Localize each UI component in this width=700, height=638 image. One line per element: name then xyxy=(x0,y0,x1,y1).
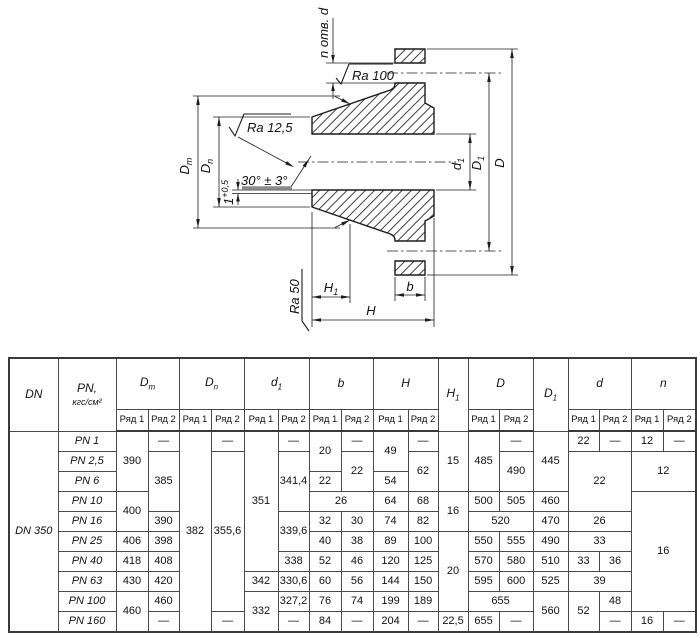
row-label: PN 25 xyxy=(58,532,116,552)
label-angle: 30° ± 3° xyxy=(241,173,287,188)
flange-drawing: n отв. d Ra 100 Ra 12,5 30° ± 3° 1+0,5 R… xyxy=(0,0,700,350)
table-cell: — xyxy=(408,612,438,633)
label-b: b xyxy=(406,279,413,294)
table-cell: — xyxy=(341,431,373,452)
table-cell: 100 xyxy=(408,532,438,552)
table-cell: 12 xyxy=(631,431,663,452)
table-row: PN 100460460332327,276741991896555605248 xyxy=(9,592,696,612)
table-cell: 22,5 xyxy=(438,612,468,633)
table-cell: 36 xyxy=(599,552,631,572)
table-row: PN 4041840833852461201255705805103336 xyxy=(9,552,696,572)
table-cell: 16 xyxy=(438,492,468,532)
label-ra50: Ra 50 xyxy=(287,279,302,314)
spec-table: DNPN,кгс/см²DmDnd1bHH1DD1dnРяд 1Ряд 2Ряд… xyxy=(8,357,697,633)
column-header: D1 xyxy=(533,358,568,431)
table-cell: 332 xyxy=(244,592,278,633)
column-header: b xyxy=(309,358,373,410)
table-cell: 54 xyxy=(373,472,408,492)
table-cell: 22 xyxy=(568,452,631,512)
table-cell: 406 xyxy=(116,532,148,552)
table-cell: 48 xyxy=(599,592,631,612)
column-header: Dn xyxy=(179,358,244,410)
table-cell: 382 xyxy=(179,431,211,632)
label-H1: H1 xyxy=(324,280,338,297)
table-cell: 62 xyxy=(408,452,438,492)
upper-hub-section xyxy=(312,83,434,134)
table-cell: 22 xyxy=(568,431,599,452)
row-subheader: Ряд 2 xyxy=(341,410,373,432)
label-ra125: Ra 12,5 xyxy=(247,120,293,135)
table-cell: 26 xyxy=(568,512,631,532)
table-cell: — xyxy=(599,431,631,452)
table-cell: — xyxy=(211,612,244,633)
table-cell: 525 xyxy=(533,572,568,592)
label-tol: 1+0,5 xyxy=(220,179,236,205)
table-cell: 555 xyxy=(499,532,533,552)
table-cell: — xyxy=(408,431,438,452)
table-cell: 520 xyxy=(468,512,533,532)
column-header: d xyxy=(568,358,631,410)
spec-table-wrap: DNPN,кгс/см²DmDnd1bHH1DD1dnРяд 1Ряд 2Ряд… xyxy=(8,357,695,633)
table-cell: 189 xyxy=(408,592,438,612)
ra100-check-icon xyxy=(336,64,349,84)
row-subheader: Ряд 1 xyxy=(309,410,341,432)
table-cell: 460 xyxy=(116,592,148,633)
table-cell: 390 xyxy=(148,512,179,532)
table-cell: — xyxy=(211,431,244,452)
table-cell: 39 xyxy=(568,572,631,592)
label-H: H xyxy=(366,303,376,318)
table-cell: — xyxy=(278,431,309,452)
upper-ring-cap xyxy=(395,49,425,63)
table-cell: 12 xyxy=(631,452,696,492)
table-cell: 204 xyxy=(373,612,408,633)
table-row: PN 63430420342330,6605614415059560052539 xyxy=(9,572,696,592)
table-row: DN 350PN 1390—382—351—20—49—15485—44522—… xyxy=(9,431,696,452)
table-cell: 74 xyxy=(373,512,408,532)
table-cell: 30 xyxy=(341,512,373,532)
table-cell: 580 xyxy=(499,552,533,572)
table-cell: — xyxy=(599,612,631,633)
row-label: PN 160 xyxy=(58,612,116,633)
label-n-holes: n отв. d xyxy=(316,7,331,58)
table-cell: 56 xyxy=(341,572,373,592)
table-cell: 74 xyxy=(341,592,373,612)
table-cell: 33 xyxy=(568,552,599,572)
row-label: PN 63 xyxy=(58,572,116,592)
table-cell: 150 xyxy=(408,572,438,592)
table-cell: 418 xyxy=(116,552,148,572)
table-cell: 26 xyxy=(309,492,373,512)
table-cell: — xyxy=(148,612,179,633)
row-subheader: Ряд 2 xyxy=(499,410,533,432)
lower-ring-cap xyxy=(395,261,425,275)
table-cell: 144 xyxy=(373,572,408,592)
table-cell: 327,2 xyxy=(278,592,309,612)
table-cell: 390 xyxy=(116,431,148,492)
table-cell: — xyxy=(148,431,179,452)
table-cell: 199 xyxy=(373,592,408,612)
label-Dn: Dn xyxy=(198,159,215,173)
row-subheader: Ряд 1 xyxy=(568,410,599,432)
table-cell: 89 xyxy=(373,532,408,552)
row-subheader: Ряд 1 xyxy=(116,410,148,432)
table-cell: 60 xyxy=(309,572,341,592)
table-cell: 33 xyxy=(568,532,631,552)
table-cell: 22 xyxy=(309,472,341,492)
table-cell: 38 xyxy=(341,532,373,552)
table-cell: 330,6 xyxy=(278,572,309,592)
column-header: Dm xyxy=(116,358,179,410)
table-cell: 68 xyxy=(408,492,438,512)
column-header: n xyxy=(631,358,696,410)
row-subheader: Ряд 1 xyxy=(179,410,211,432)
table-cell: 15 xyxy=(438,431,468,492)
row-label: PN 6 xyxy=(58,472,116,492)
label-D: D xyxy=(492,158,507,167)
row-label: PN 2,5 xyxy=(58,452,116,472)
table-cell: 510 xyxy=(533,552,568,572)
table-cell: 20 xyxy=(309,431,341,472)
table-cell: 420 xyxy=(148,572,179,592)
column-header: d1 xyxy=(244,358,309,410)
table-cell: 550 xyxy=(468,532,499,552)
table-cell: 125 xyxy=(408,552,438,572)
page: n отв. d Ra 100 Ra 12,5 30° ± 3° 1+0,5 R… xyxy=(0,0,700,638)
table-cell: 470 xyxy=(533,512,568,532)
row-subheader: Ряд 2 xyxy=(599,410,631,432)
row-label: PN 100 xyxy=(58,592,116,612)
table-cell: 445 xyxy=(533,431,568,492)
table-cell: 32 xyxy=(309,512,341,532)
table-row: PN 254063984038891002055055549033 xyxy=(9,532,696,552)
table-cell: 460 xyxy=(533,492,568,512)
table-cell: 490 xyxy=(533,532,568,552)
row-subheader: Ряд 2 xyxy=(408,410,438,432)
table-cell: 570 xyxy=(468,552,499,572)
column-header: D xyxy=(468,358,533,410)
table-cell: 398 xyxy=(148,532,179,552)
table-cell: 595 xyxy=(468,572,499,592)
table-cell: 490 xyxy=(499,452,533,492)
row-subheader: Ряд 2 xyxy=(211,410,244,432)
table-cell: 16 xyxy=(631,492,696,612)
table-cell: — xyxy=(341,612,373,633)
lower-hub-section xyxy=(312,190,434,241)
table-cell: 460 xyxy=(148,592,179,612)
table-cell: 64 xyxy=(373,492,408,512)
table-cell: 20 xyxy=(438,532,468,612)
table-body: DN 350PN 1390—382—351—20—49—15485—44522—… xyxy=(9,431,696,632)
row-subheader: Ряд 1 xyxy=(373,410,408,432)
table-cell: 76 xyxy=(309,592,341,612)
table-cell: 655 xyxy=(468,592,533,612)
row-subheader: Ряд 2 xyxy=(148,410,179,432)
row-subheader: Ряд 1 xyxy=(631,410,663,432)
row-subheader: Ряд 1 xyxy=(244,410,278,432)
table-cell: 40 xyxy=(309,532,341,552)
table-cell: — xyxy=(278,612,309,633)
table-cell: 485 xyxy=(468,431,499,492)
table-cell: 400 xyxy=(116,492,148,532)
table-cell: 338 xyxy=(278,552,309,572)
drawing-labels: n отв. d Ra 100 Ra 12,5 30° ± 3° 1+0,5 R… xyxy=(177,7,507,318)
label-Dm: Dm xyxy=(177,157,194,174)
table-cell: 52 xyxy=(309,552,341,572)
table-cell: — xyxy=(499,431,533,452)
row-label: PN 40 xyxy=(58,552,116,572)
table-cell: 355,6 xyxy=(211,452,244,612)
row-subheader: Ряд 1 xyxy=(468,410,499,432)
table-cell: — xyxy=(663,612,696,633)
ra50-check-icon xyxy=(302,269,309,331)
label-ra100: Ra 100 xyxy=(352,68,395,83)
table-cell: 120 xyxy=(373,552,408,572)
table-cell: 16 xyxy=(631,612,663,633)
table-cell: 600 xyxy=(499,572,533,592)
table-cell: 22 xyxy=(341,452,373,492)
row-subheader: Ряд 2 xyxy=(663,410,696,432)
label-D1: D1 xyxy=(469,156,486,170)
table-row: PN 2,5385355,6341,422624902212 xyxy=(9,452,696,472)
row-label: PN 10 xyxy=(58,492,116,512)
column-header: PN,кгс/см² xyxy=(58,358,116,431)
table-cell: 82 xyxy=(408,512,438,532)
table-cell: 339,6 xyxy=(278,512,309,552)
table-head: DNPN,кгс/см²DmDnd1bHH1DD1dnРяд 1Ряд 2Ряд… xyxy=(9,358,696,431)
table-cell: — xyxy=(499,612,533,633)
table-cell: 52 xyxy=(568,592,599,633)
table-cell: 560 xyxy=(533,592,568,633)
table-cell: 46 xyxy=(341,552,373,572)
column-header: H xyxy=(373,358,438,410)
row-label: PN 1 xyxy=(58,431,116,452)
table-cell: — xyxy=(663,431,696,452)
table-cell: 500 xyxy=(468,492,499,512)
table-cell: 655 xyxy=(468,612,499,633)
row-subheader: Ряд 2 xyxy=(278,410,309,432)
label-d1: d1 xyxy=(449,158,466,170)
table-cell: 341,4 xyxy=(278,452,309,512)
row-label: PN 16 xyxy=(58,512,116,532)
column-header: DN xyxy=(9,358,58,431)
table-cell: 505 xyxy=(499,492,533,512)
table-row: PN 16390339,63230748252047026 xyxy=(9,512,696,532)
column-header: H1 xyxy=(438,358,468,431)
table-cell: 49 xyxy=(373,431,408,472)
table-cell: 408 xyxy=(148,552,179,572)
dn-cell: DN 350 xyxy=(9,431,58,632)
table-cell: 430 xyxy=(116,572,148,592)
table-cell: 84 xyxy=(309,612,341,633)
table-cell: 385 xyxy=(148,452,179,512)
table-cell: 342 xyxy=(244,572,278,592)
table-cell: 351 xyxy=(244,431,278,572)
